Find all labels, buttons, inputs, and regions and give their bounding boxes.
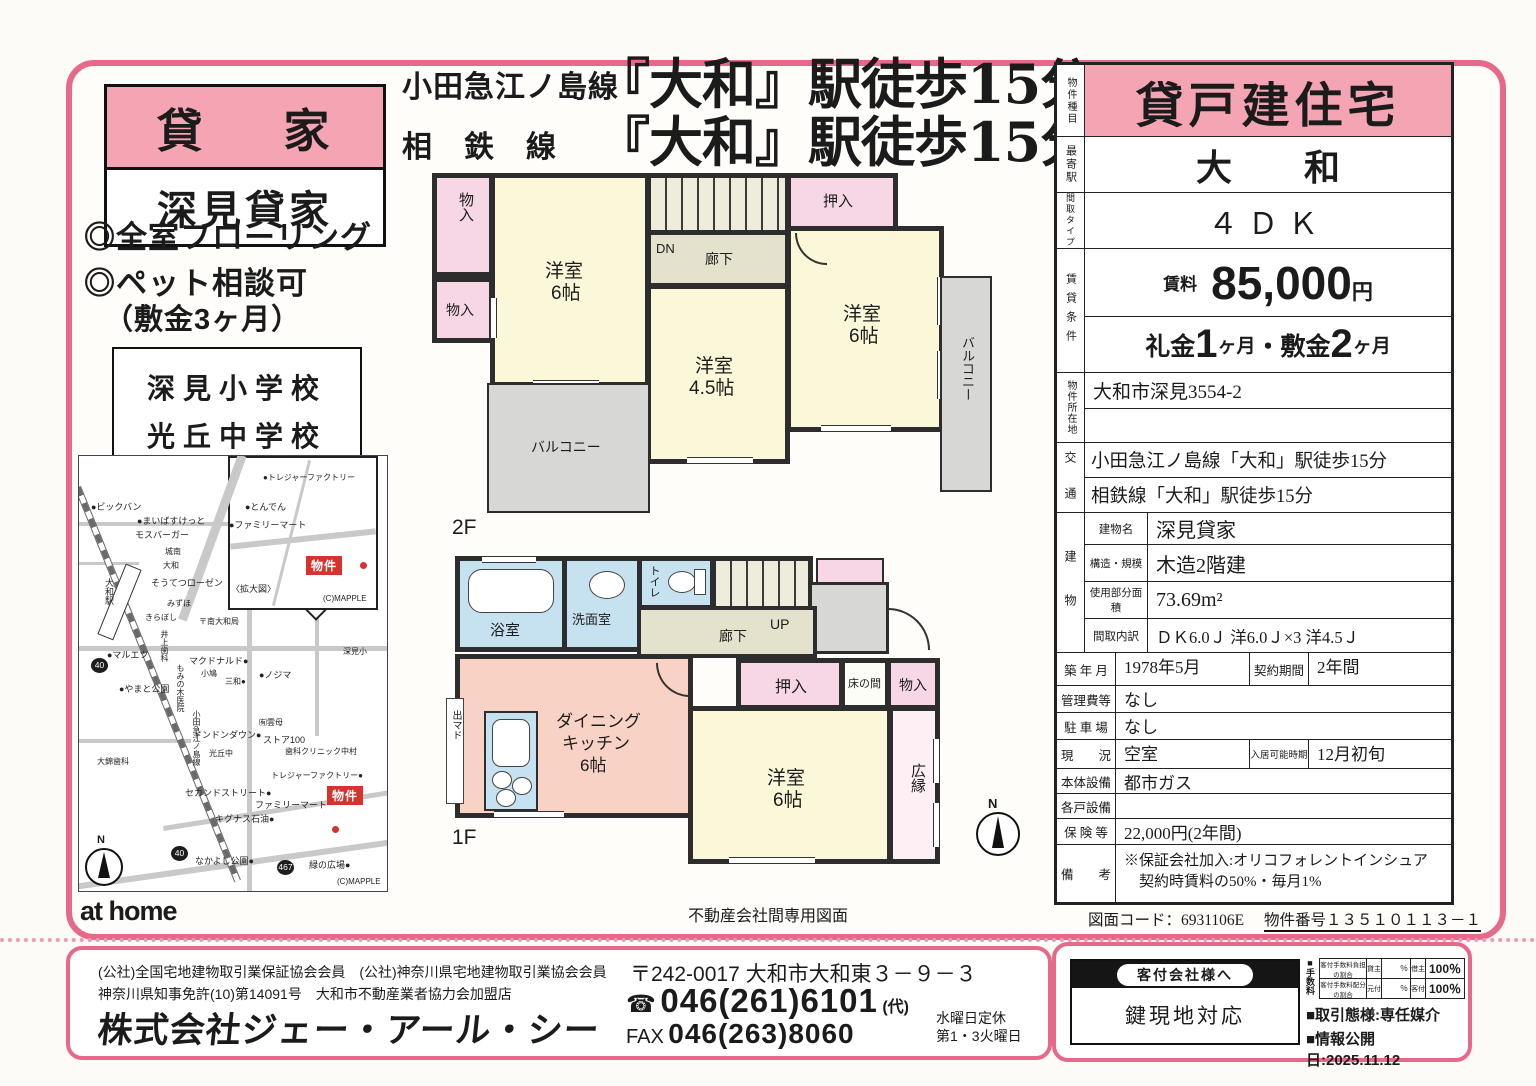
- insurance-value: 22,000円(2年間): [1116, 819, 1242, 844]
- contract-label: 契約期間: [1249, 653, 1309, 685]
- row-label-layout: 間取タイプ: [1057, 193, 1085, 248]
- fee-r2-v2: 100％: [1426, 979, 1464, 998]
- oshiire-1f: 押入: [736, 658, 844, 710]
- room-2f-c: 洋室 4.5帖: [646, 284, 790, 464]
- stairs-2f: [646, 173, 790, 235]
- property-dot-main: [332, 826, 339, 833]
- flyer-page: 貸 家 深見貸家 ◎全室フローリング ◎ペット相談可 （敷金3ヶ月） 深見小学校…: [0, 0, 1536, 1086]
- drawing-code: 図面コード：6931106E: [1088, 908, 1244, 930]
- hall-1f: 廊下: [637, 606, 817, 658]
- parking-value: なし: [1116, 713, 1158, 739]
- kitchen-counter: [484, 711, 538, 811]
- washroom: 洗面室: [562, 556, 642, 652]
- monoire-1f: 物入: [886, 658, 940, 710]
- map-label: ●ノジマ: [259, 668, 291, 681]
- map-label: 〈拡大図〉: [231, 582, 276, 595]
- rent-unit: 円: [1352, 276, 1373, 306]
- bathroom-label: 浴室: [490, 619, 520, 640]
- property-marker-main: 物件: [327, 786, 363, 805]
- closed-day-1: 水曜日定休: [936, 1008, 1006, 1028]
- oshiire-2f: 押入: [786, 173, 898, 231]
- area-label: 使用部分面積: [1085, 582, 1148, 618]
- headline-line1-prefix: 小田急江ノ島線: [402, 62, 619, 106]
- balcony-bottom-label: バルコニー: [531, 437, 601, 457]
- map-label: ㈲雲母: [259, 717, 283, 728]
- plan-compass-n: N: [988, 796, 997, 811]
- bname-label: 建物名: [1085, 513, 1148, 544]
- row-label-terms: 賃貸条件: [1057, 249, 1085, 372]
- map-label: ●ビックバン: [91, 500, 141, 513]
- fee-table: ■手数料 客付手数料負担の割合 貸主 ％ 借主 100％ 客付手数料配分の割合 …: [1304, 958, 1465, 999]
- elementary-school: 深見小学校: [114, 367, 360, 407]
- row-label-building: 建 物: [1057, 513, 1085, 652]
- agent-box-header: 客付会社様へ: [1117, 964, 1253, 986]
- address-value-2: [1085, 409, 1451, 442]
- agent-info-box: 客付会社様へ 鍵現地対応 ■手数料 客付手数料負担の割合 貸主 ％ 借主 100…: [1052, 942, 1472, 1062]
- fee-r2-p2: 客付: [1411, 979, 1426, 998]
- reikin-unit: ヶ月: [1217, 331, 1255, 358]
- map-label: ●まいばすけっと: [137, 514, 205, 527]
- balcony-2f-bottom: バルコニー: [487, 383, 650, 513]
- mgmt-value: なし: [1116, 686, 1158, 712]
- map-label: そうてつローゼン: [151, 576, 223, 589]
- company-name: 株式会社ジェー・アール・シー: [95, 1002, 602, 1053]
- notes-line2: 契約時賃料の50%・毎月1%: [1124, 870, 1451, 891]
- madori-label: 間取内訳: [1085, 619, 1148, 652]
- oshiire-1f-label: 押入: [775, 673, 807, 697]
- map-label: モスバーガー: [135, 528, 189, 541]
- map-road: [315, 606, 319, 736]
- publish-date: ■情報公開日:2025.11.12: [1306, 1028, 1468, 1070]
- dk-label-3: 6帖: [580, 751, 606, 776]
- access-2: 相鉄線「大和」駅徒歩15分: [1085, 478, 1451, 512]
- agent-message-box: 客付会社様へ 鍵現地対応: [1070, 959, 1300, 1045]
- stairs-up-label: UP: [770, 616, 789, 632]
- map-label: ●ファミリーマート: [229, 518, 306, 531]
- fax-label: FAX: [626, 1026, 664, 1048]
- property-type: 貸戸建住宅: [1135, 66, 1400, 136]
- room-1f: 洋室 6帖: [688, 706, 892, 864]
- oshiire-2f-label: 押入: [823, 190, 853, 211]
- balcony-2f-right: バルコニー: [940, 276, 992, 492]
- map-route-badge: 40: [171, 846, 188, 861]
- map-road: [230, 528, 376, 549]
- map-label: (C)MAPPLE: [337, 877, 381, 886]
- room-2f-a: 洋室 6帖: [490, 173, 650, 387]
- map-label: (C)MAPPLE: [323, 594, 367, 603]
- transaction-type: ■取引態様:専任媒介: [1306, 1004, 1440, 1025]
- feature-deposit: （敷金3ヶ月）: [104, 296, 301, 338]
- toilet-label: トイレ: [646, 565, 662, 598]
- rent-label: 賃料: [1163, 270, 1197, 295]
- property-number: 物件番号１３５１０１１３－１: [1264, 908, 1481, 932]
- map-label: ●マルエツ: [107, 648, 148, 661]
- closet-2f-1-label: 物入: [455, 192, 476, 222]
- map-label: マクドナルド●: [189, 654, 248, 667]
- washroom-label: 洗面室: [572, 609, 611, 628]
- tokonoma: 床の間: [840, 658, 890, 710]
- floor-label-2f: 2F: [452, 516, 477, 540]
- status-value: 空室: [1116, 740, 1249, 768]
- address-value: 大和市深見3554-2: [1085, 373, 1451, 409]
- map-label: トレジャーファクトリー●: [271, 770, 363, 781]
- floorplan-2f: 物入 物入 洋室 6帖 DN 廊下 押入 洋室 6帖 洋室 4.5: [430, 166, 1010, 544]
- phone-icon: ☎: [626, 991, 656, 1018]
- bay-window-label: 出マド: [448, 710, 463, 740]
- movein-label: 入居可能時期: [1249, 740, 1309, 768]
- membership-line1: (公社)全国宅地建物取引業保証協会会員 (公社)神奈川県宅地建物取引業協会会員: [98, 962, 607, 982]
- room-1f-size: 6帖: [773, 785, 803, 812]
- madori-value: ＤＫ6.0Ｊ 洋6.0Ｊ×3 洋4.5Ｊ: [1148, 624, 1359, 648]
- row-label-station: 最寄駅: [1057, 137, 1085, 192]
- reikin-value: 1: [1195, 322, 1217, 367]
- map-road: [247, 606, 252, 891]
- map-label: みずほ: [167, 598, 191, 609]
- map-label: 〒南大和局: [199, 616, 239, 627]
- row-label-type: 物件種目: [1057, 65, 1085, 136]
- feature-flooring: ◎全室フローリング: [84, 212, 372, 257]
- hall-1f-label: 廊下: [719, 626, 747, 646]
- map-label: 深見小: [343, 646, 367, 657]
- property-marker-inset: 物件: [306, 556, 342, 575]
- closet-2f-2: 物入: [432, 277, 494, 343]
- stairs-dn-label: DN: [656, 241, 675, 256]
- tel-suffix: (代): [882, 999, 909, 1016]
- dining-kitchen: ダイニング キッチン 6帖: [455, 654, 693, 818]
- map-label: 城南: [165, 546, 181, 557]
- monoire-1f-label: 物入: [899, 675, 927, 695]
- map-label: 歯科クリニック中村: [285, 746, 357, 757]
- map-label: 小鳩: [201, 668, 217, 679]
- plan-compass-icon: [976, 812, 1020, 856]
- fee-r2-name: 客付手数料配分の割合: [1320, 979, 1367, 998]
- junior-high-school: 光丘中学校: [114, 415, 360, 455]
- company-box: (公社)全国宅地建物取引業保証協会会員 (公社)神奈川県宅地建物取引業協会会員 …: [66, 946, 1052, 1060]
- rent-value: 85,000: [1211, 256, 1352, 310]
- reikin-label: 礼金: [1145, 327, 1195, 363]
- map-route-badge: 467: [277, 860, 294, 875]
- map-label: きらぼし: [145, 612, 177, 623]
- map-label: ●やまと公園: [119, 682, 169, 695]
- fee-r1-v2: 100％: [1426, 959, 1464, 978]
- unit-equip-value: [1116, 794, 1124, 818]
- membership-line2: 神奈川県知事免許(10)第14091号 大和市不動産業者協力会加盟店: [98, 984, 512, 1004]
- entrance-door-arc: [888, 608, 930, 650]
- map-label: 三和●: [225, 676, 246, 687]
- unit-equip-label: 各戸設備: [1057, 794, 1116, 818]
- shikikin-unit: ヶ月: [1353, 331, 1391, 358]
- athome-logo: at home: [80, 896, 177, 927]
- map-label: 緑の広場●: [309, 858, 350, 871]
- closet-2f-2-label: 物入: [446, 300, 474, 320]
- structure-value: 木造2階建: [1148, 549, 1246, 578]
- toilet-room: トイレ: [637, 556, 715, 610]
- hiroen-label: 広縁: [907, 763, 928, 793]
- room-2f-b: 洋室 6帖: [786, 226, 944, 432]
- parking-label: 駐 車 場: [1057, 713, 1116, 739]
- equip-value: 都市ガス: [1116, 769, 1192, 793]
- structure-label: 構造・規模: [1085, 545, 1148, 581]
- fee-r2-p1: 元付: [1367, 979, 1382, 998]
- fee-r1-p2: 借主: [1411, 959, 1426, 978]
- floorplan-1f: 浴室 洗面室 トイレ 廊下 UP ダイニング キッチン 6帖: [448, 552, 1008, 872]
- equip-label: 本体設備: [1057, 769, 1116, 793]
- bname-value: 深見貸家: [1148, 514, 1236, 543]
- map-label: なかよし公園●: [195, 854, 254, 867]
- property-table: 物件種目 貸戸建住宅 最寄駅 大 和 間取タイプ ４ＤＫ 賃貸条件 賃料 85,…: [1054, 62, 1454, 905]
- notes-label: 備 考: [1057, 845, 1116, 902]
- company-fax: 046(263)8060: [668, 1018, 854, 1049]
- map-label: 大和: [163, 560, 179, 571]
- contract-value: 2年間: [1309, 653, 1451, 685]
- map-label: ●トレジャーファクトリー: [263, 472, 355, 483]
- closet-2f-1: 物入: [432, 173, 494, 277]
- shikikin-value: 2: [1331, 322, 1353, 367]
- internal-use-note: 不動産会社間専用図面: [688, 902, 848, 926]
- status-label: 現 況: [1057, 740, 1116, 768]
- built-value: 1978年5月: [1116, 653, 1249, 685]
- layout-value: ４ＤＫ: [1208, 199, 1328, 243]
- property-dot-inset: [360, 562, 367, 569]
- map-label: もみの木医院: [175, 664, 186, 712]
- title-header: 貸 家: [107, 87, 383, 170]
- headline-line2-prefix: 相 鉄 線: [402, 122, 557, 166]
- map-label: キグナス石油●: [215, 812, 274, 825]
- insurance-label: 保 険 等: [1057, 819, 1116, 844]
- shoe-cabinet: [816, 558, 884, 584]
- fee-table-label: ■手数料: [1304, 958, 1317, 999]
- hiroen: 広縁: [888, 706, 940, 864]
- fee-r2-v1: ％: [1382, 979, 1411, 998]
- fee-r1-p1: 貸主: [1367, 959, 1382, 978]
- map-label: ファミリーマート: [255, 798, 327, 811]
- tokonoma-label: 床の間: [848, 675, 881, 691]
- floor-label-1f: 1F: [452, 826, 477, 850]
- entrance: [809, 582, 889, 654]
- map-label: ●とんでん: [245, 500, 286, 513]
- map-label: ドンドンダウン●: [193, 728, 261, 741]
- fee-r1-name: 客付手数料負担の割合: [1320, 959, 1367, 978]
- shikikin-label: ・敷金: [1256, 327, 1331, 363]
- map-road: [79, 739, 191, 743]
- closed-day-2: 第1・3火曜日: [936, 1026, 1022, 1046]
- map-label: 井上歯科: [159, 630, 170, 662]
- room-2f-c-size: 4.5帖: [689, 373, 734, 400]
- fee-r1-v1: ％: [1382, 959, 1411, 978]
- balcony-right-label: バルコニー: [958, 336, 977, 401]
- notes-line1: ※保証会社加入:オリコフォレントインシュア: [1124, 849, 1451, 870]
- area-value: 73.69m²: [1148, 589, 1223, 612]
- access-1: 小田急江ノ島線「大和」駅徒歩15分: [1085, 443, 1451, 478]
- bathroom: 浴室: [455, 556, 567, 652]
- map-compass-icon: [85, 848, 123, 886]
- mgmt-label: 管理費等: [1057, 686, 1116, 712]
- map-label: 大錦歯科: [97, 756, 129, 767]
- company-tel: 046(261)6101: [660, 982, 878, 1019]
- station-value: 大 和: [1196, 139, 1340, 191]
- map-compass-n: N: [97, 834, 105, 846]
- map-label: 大和駅: [103, 578, 116, 605]
- hall-2f-label: 廊下: [705, 249, 733, 269]
- room-2f-a-size: 6帖: [551, 278, 581, 305]
- area-map: ●ビックバン●まいばすけっとモスバーガー城南大和そうてつローゼンみずほきらぼし〒…: [78, 455, 388, 892]
- map-route-badge: 40: [91, 658, 108, 673]
- map-label: ストア100: [263, 733, 305, 746]
- room-2f-b-size: 6帖: [849, 321, 879, 348]
- agent-box-body: 鍵現地対応: [1072, 988, 1298, 1041]
- built-label: 築 年 月: [1057, 653, 1116, 685]
- movein-value: 12月初旬: [1309, 740, 1451, 768]
- hall-2f: DN 廊下: [646, 230, 790, 288]
- map-label: 光丘中: [209, 748, 233, 759]
- row-label-address: 物件所在地: [1057, 373, 1085, 442]
- row-label-access: 交 通: [1057, 443, 1085, 512]
